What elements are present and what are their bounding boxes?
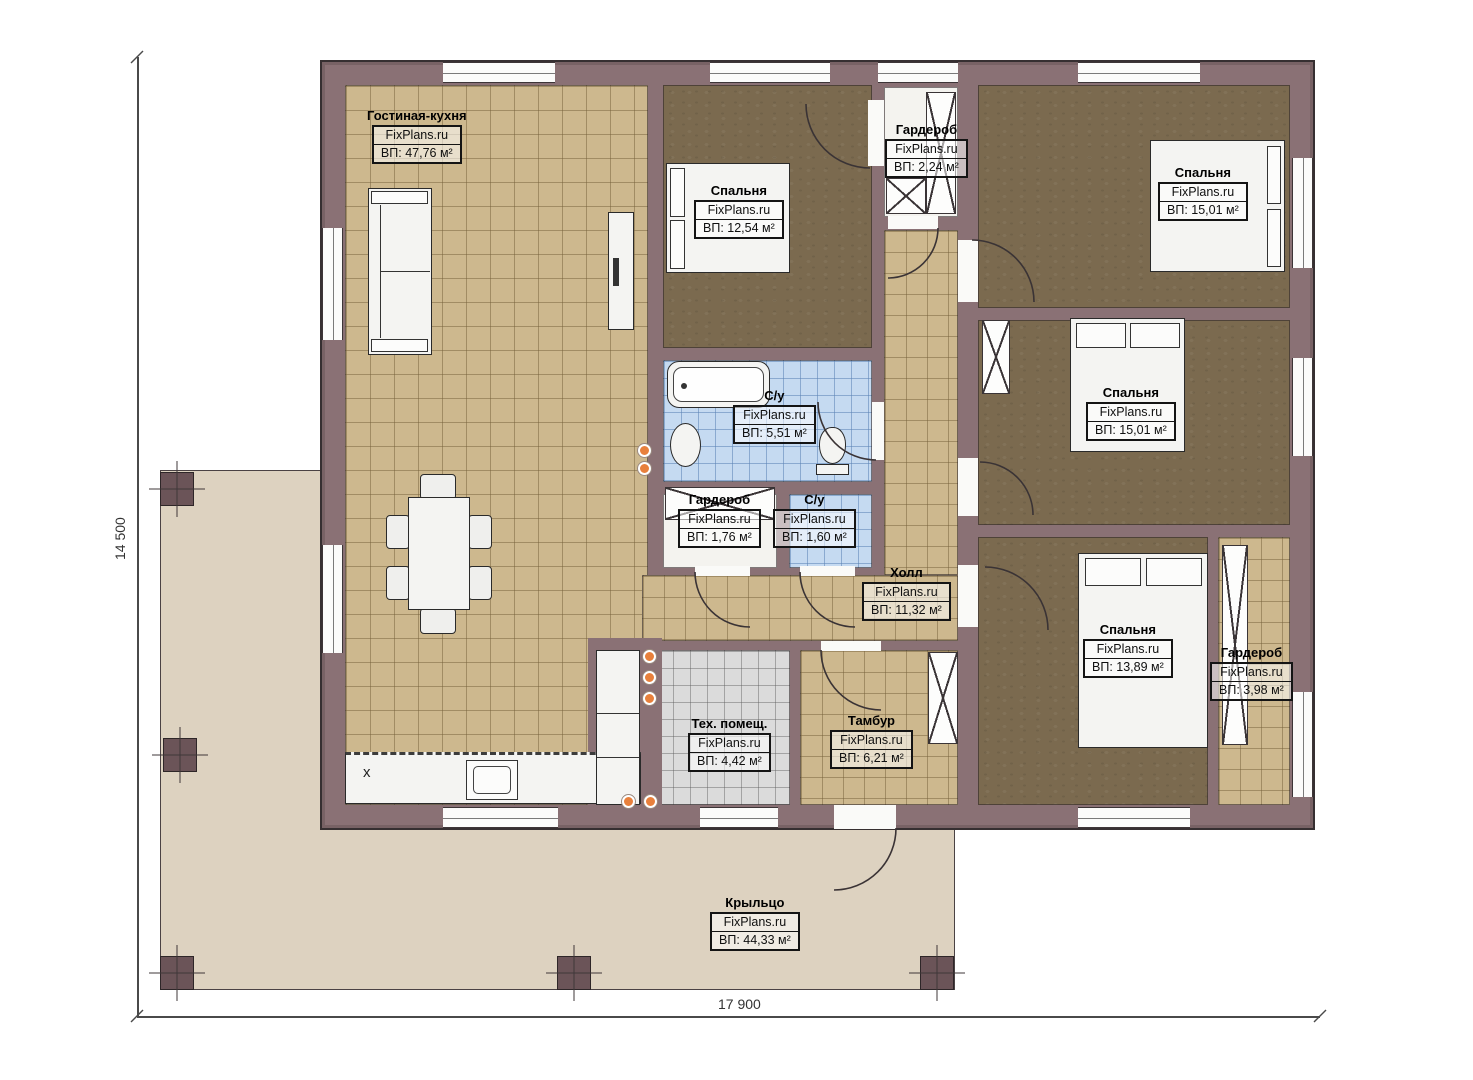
room-label-tambur: Тамбур FixPlans.ruВП: 6,21 м² [830, 713, 913, 769]
door-opening-bedroom3 [958, 458, 978, 516]
room-label-bedroom1: Спальня FixPlans.ruВП: 12,54 м² [694, 183, 784, 239]
window [443, 807, 558, 828]
room-label-wardrobe3: Гардероб FixPlans.ruВП: 3,98 м² [1210, 645, 1293, 701]
corridor-floor [884, 230, 958, 575]
window [1078, 62, 1200, 83]
window [710, 62, 830, 83]
cooktop-mark: х [363, 764, 371, 781]
window [1078, 807, 1190, 828]
dining-chair [386, 566, 410, 600]
window [443, 62, 555, 83]
socket-marker [622, 795, 635, 808]
floor-plan-canvas: х [0, 0, 1473, 1080]
dining-chair [386, 515, 410, 549]
wardrobe-hatch [928, 652, 958, 744]
sofa [368, 188, 432, 355]
porch-post [160, 956, 194, 990]
porch-post [163, 738, 197, 772]
window [878, 62, 958, 83]
room-label-hall: Холл FixPlans.ruВП: 11,32 м² [862, 565, 951, 621]
room-label-tech: Тех. помещ. FixPlans.ruВП: 4,42 м² [688, 716, 771, 772]
socket-marker [638, 444, 651, 457]
dining-chair [468, 566, 492, 600]
tv-cabinet [608, 212, 634, 330]
window [1292, 358, 1313, 456]
window [700, 807, 778, 828]
room-label-bedroom3: Спальня FixPlans.ruВП: 15,01 м² [1086, 385, 1176, 441]
wardrobe-hatch [886, 178, 926, 214]
socket-marker [643, 650, 656, 663]
dining-chair [420, 608, 456, 634]
door-opening-wardrobe1 [888, 216, 938, 229]
dimension-line-vertical [137, 57, 139, 1016]
door-opening-entrance [834, 805, 896, 829]
door-opening-wardrobe2 [695, 566, 750, 576]
porch-post [557, 956, 591, 990]
socket-marker [638, 462, 651, 475]
room-label-living: Гостиная-кухня FixPlans.ruВП: 47,76 м² [367, 108, 467, 164]
door-opening-tambur [821, 641, 881, 651]
door-opening-bath2 [800, 566, 855, 576]
door-opening-bath1 [872, 402, 884, 460]
kitchen-appliance-column [596, 650, 640, 805]
dimension-line-horizontal [137, 1016, 1320, 1018]
washbasin [670, 423, 701, 467]
dimension-label-height: 14 500 [112, 517, 128, 560]
window [1292, 158, 1313, 268]
room-label-bath2: С/у FixPlans.ruВП: 1,60 м² [773, 492, 856, 548]
wardrobe-hatch [982, 320, 1010, 394]
room-label-wardrobe1: Гардероб FixPlans.ruВП: 2,24 м² [885, 122, 968, 178]
window [322, 545, 343, 653]
toilet-tank [816, 464, 849, 475]
door-opening-bedroom4 [958, 565, 978, 627]
porch-post [920, 956, 954, 990]
room-label-bath1: С/у FixPlans.ruВП: 5,51 м² [733, 388, 816, 444]
room-label-bedroom4: Спальня FixPlans.ruВП: 13,89 м² [1083, 622, 1173, 678]
window [1292, 692, 1313, 797]
door-opening-bedroom1 [868, 100, 884, 166]
room-label-wardrobe2: Гардероб FixPlans.ruВП: 1,76 м² [678, 492, 761, 548]
room-label-porch: Крыльцо FixPlans.ruВП: 44,33 м² [710, 895, 800, 951]
socket-marker [643, 671, 656, 684]
socket-marker [644, 795, 657, 808]
window [322, 228, 343, 340]
dining-table [408, 497, 470, 610]
door-opening-bedroom2 [958, 240, 978, 302]
dining-chair [468, 515, 492, 549]
dimension-label-width: 17 900 [718, 996, 761, 1012]
room-label-bedroom2: Спальня FixPlans.ruВП: 15,01 м² [1158, 165, 1248, 221]
porch-post [160, 472, 194, 506]
toilet [819, 427, 846, 464]
socket-marker [643, 692, 656, 705]
